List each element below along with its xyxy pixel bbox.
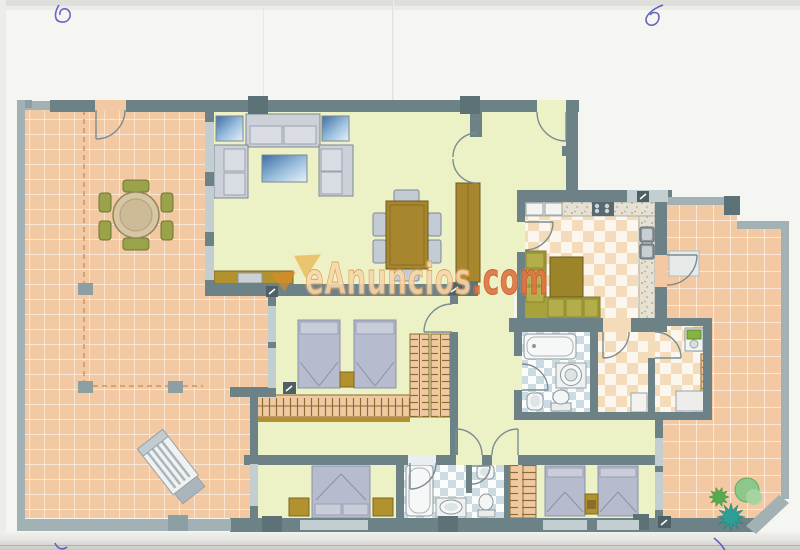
nightstand	[289, 498, 309, 516]
toilet	[551, 390, 571, 411]
nightstand	[373, 498, 393, 516]
pen-top-right-loop	[646, 5, 663, 25]
marker	[658, 516, 671, 528]
nightstand	[340, 372, 354, 387]
pen-bottom-left-curl	[55, 543, 67, 549]
floor-plan-drawing	[0, 0, 800, 550]
hallway-south-floor	[452, 420, 655, 455]
scanned-paper: eAnuncios.com	[0, 0, 800, 550]
utility-cabinet	[676, 391, 704, 411]
glass-side-table	[216, 116, 243, 141]
nook-table	[550, 257, 583, 297]
marker	[448, 283, 462, 295]
kitchen-unit	[545, 203, 562, 215]
marker	[266, 286, 278, 297]
marker	[637, 191, 649, 202]
shower-tray	[631, 393, 647, 412]
coffee-table	[262, 155, 307, 182]
marker	[283, 382, 296, 394]
stove	[592, 202, 614, 216]
pen-top-left-squiggle	[55, 5, 70, 22]
pen-bottom-right-stroke	[714, 538, 725, 550]
dining-table	[386, 201, 428, 269]
glass-side-table	[322, 116, 349, 141]
fridge	[526, 203, 543, 215]
